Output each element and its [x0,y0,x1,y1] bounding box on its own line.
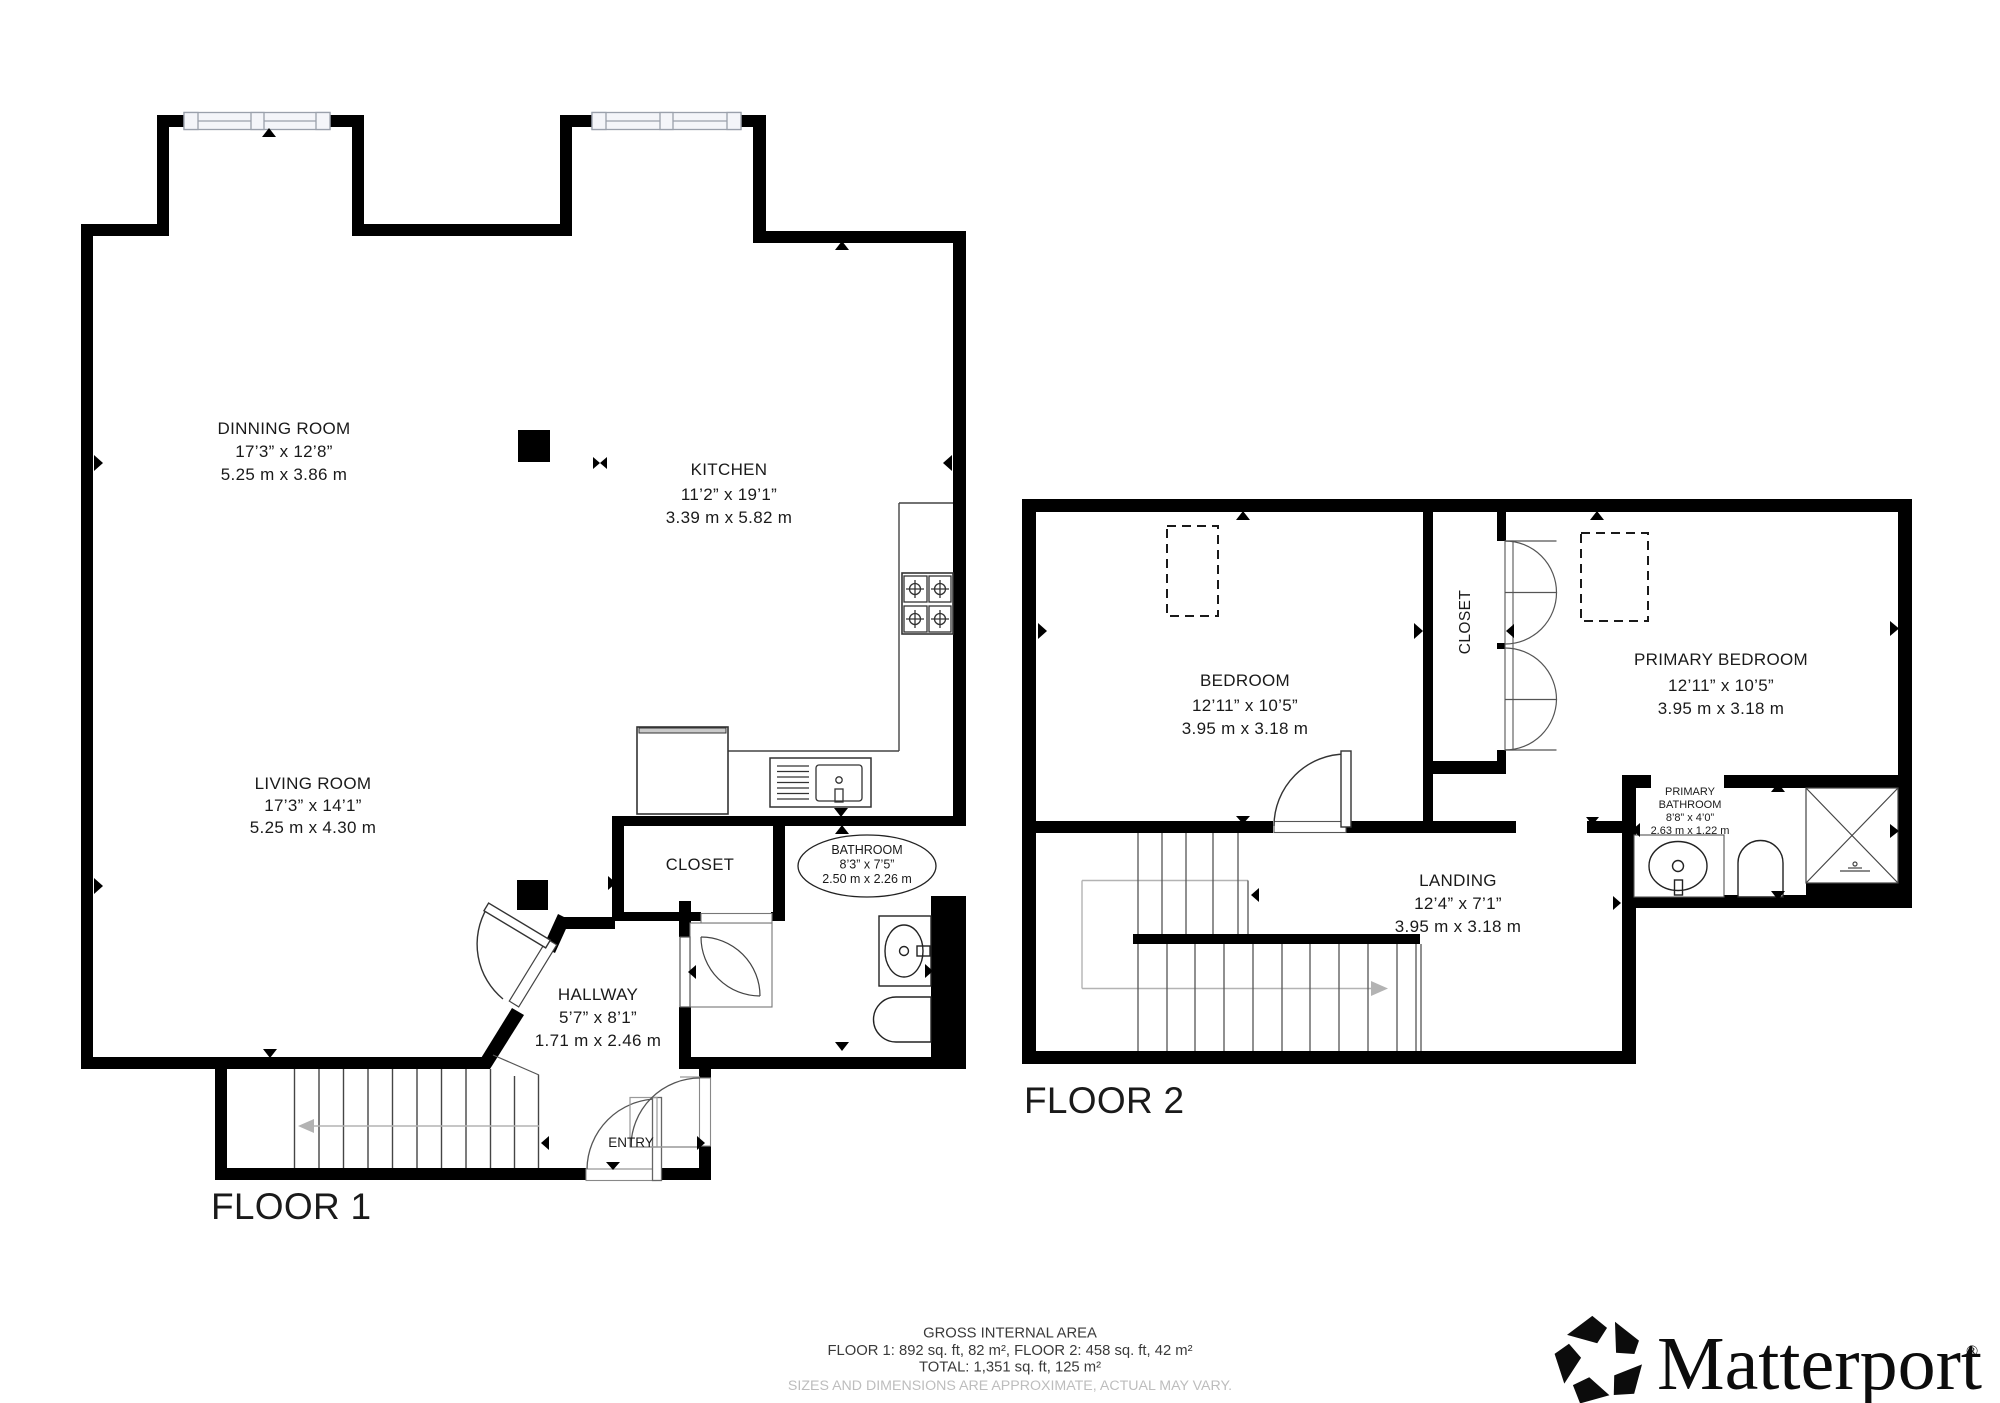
svg-text:12’11” x 10’5”: 12’11” x 10’5” [1668,676,1774,695]
svg-text:LANDING: LANDING [1419,871,1497,890]
svg-text:FLOOR 1: 892 sq. ft, 82 m², FL: FLOOR 1: 892 sq. ft, 82 m², FLOOR 2: 458… [827,1343,1192,1359]
svg-text:CLOSET: CLOSET [1457,590,1474,655]
svg-text:LIVING ROOM: LIVING ROOM [255,774,372,793]
svg-text:FLOOR 2: FLOOR 2 [1024,1080,1184,1121]
svg-text:SIZES AND DIMENSIONS ARE APPRO: SIZES AND DIMENSIONS ARE APPROXIMATE, AC… [788,1378,1232,1394]
svg-text:3.95 m x 3.18 m: 3.95 m x 3.18 m [1658,699,1784,718]
svg-text:®: ® [1966,1343,1978,1360]
svg-text:PRIMARY BEDROOM: PRIMARY BEDROOM [1634,650,1808,669]
svg-text:Matterport: Matterport [1657,1322,1982,1403]
svg-text:11’2” x 19’1”: 11’2” x 19’1” [681,485,777,504]
svg-text:TOTAL: 1,351 sq. ft, 125 m²: TOTAL: 1,351 sq. ft, 125 m² [919,1360,1101,1376]
svg-text:ENTRY: ENTRY [608,1135,654,1150]
svg-text:5’7” x 8’1”: 5’7” x 8’1” [559,1008,637,1027]
svg-text:BATHROOM: BATHROOM [1659,799,1722,811]
svg-text:8’8” x 4’0”: 8’8” x 4’0” [1666,812,1715,824]
svg-text:PRIMARY: PRIMARY [1665,786,1716,798]
svg-text:CLOSET: CLOSET [666,856,734,874]
svg-text:2.63 m x 1.22 m: 2.63 m x 1.22 m [1651,825,1730,837]
svg-text:GROSS INTERNAL AREA: GROSS INTERNAL AREA [923,1326,1097,1342]
svg-text:3.39 m x 5.82 m: 3.39 m x 5.82 m [666,508,792,527]
svg-text:FLOOR 1: FLOOR 1 [211,1186,371,1227]
svg-text:17’3” x 14’1”: 17’3” x 14’1” [264,796,361,815]
svg-text:2.50 m x 2.26 m: 2.50 m x 2.26 m [822,872,912,886]
svg-text:17’3” x 12’8”: 17’3” x 12’8” [235,442,332,461]
svg-text:1.71 m x 2.46 m: 1.71 m x 2.46 m [535,1031,661,1050]
svg-text:8’3” x 7’5”: 8’3” x 7’5” [840,858,895,872]
svg-text:DINNING ROOM: DINNING ROOM [218,419,351,438]
svg-text:BEDROOM: BEDROOM [1200,671,1290,690]
svg-text:HALLWAY: HALLWAY [558,985,638,1004]
svg-text:12’11” x 10’5”: 12’11” x 10’5” [1192,696,1298,715]
svg-text:5.25 m x 4.30 m: 5.25 m x 4.30 m [250,818,376,837]
svg-text:BATHROOM: BATHROOM [831,843,902,857]
svg-text:3.95 m x 3.18 m: 3.95 m x 3.18 m [1182,719,1308,738]
svg-text:12’4” x 7’1”: 12’4” x 7’1” [1414,894,1502,913]
svg-text:KITCHEN: KITCHEN [691,460,768,479]
svg-text:3.95 m x 3.18 m: 3.95 m x 3.18 m [1395,917,1521,936]
svg-text:5.25 m x 3.86 m: 5.25 m x 3.86 m [221,465,347,484]
